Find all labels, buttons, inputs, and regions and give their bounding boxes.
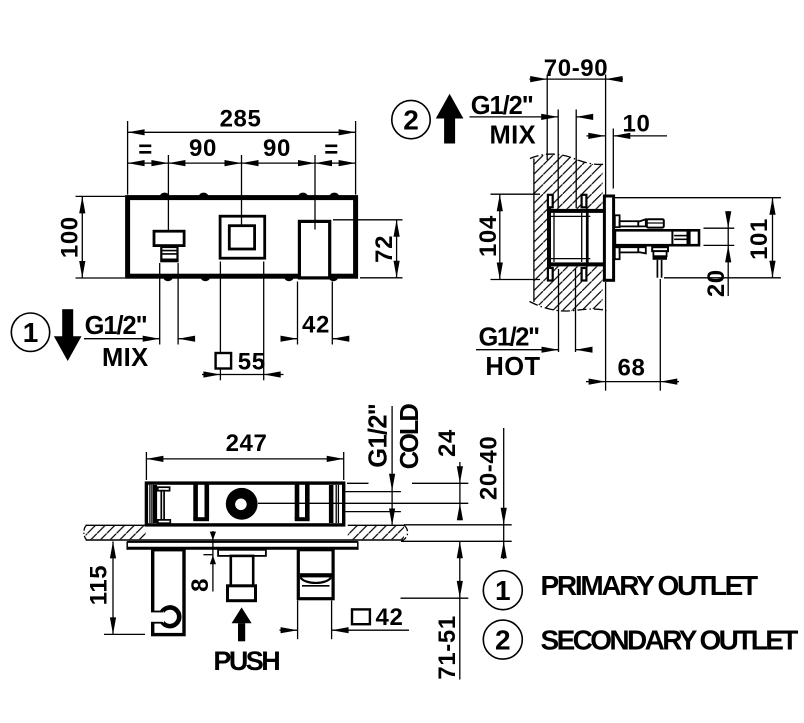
svg-text:70-90: 70-90	[544, 55, 608, 82]
svg-text:G1/2": G1/2"	[479, 323, 541, 351]
svg-text:285: 285	[220, 105, 262, 132]
svg-text:=: =	[138, 136, 153, 163]
svg-text:HOT: HOT	[485, 353, 540, 381]
svg-text:104: 104	[475, 215, 502, 257]
svg-text:MIX: MIX	[102, 344, 149, 372]
svg-text:68: 68	[618, 355, 646, 382]
svg-text:PUSH: PUSH	[213, 646, 281, 676]
svg-text:G1/2": G1/2"	[365, 403, 393, 468]
svg-text:1: 1	[495, 575, 511, 606]
svg-text:SECONDARY OUTLET: SECONDARY OUTLET	[541, 625, 799, 656]
svg-text:G1/2": G1/2"	[85, 312, 149, 340]
svg-text:1: 1	[23, 317, 39, 348]
svg-text:42: 42	[376, 604, 404, 631]
svg-text:G1/2": G1/2"	[471, 92, 535, 120]
svg-text:100: 100	[57, 216, 84, 258]
svg-text:=: =	[324, 136, 339, 163]
svg-text:20-40: 20-40	[476, 436, 503, 500]
svg-text:MIX: MIX	[490, 121, 537, 149]
svg-text:20: 20	[703, 269, 730, 297]
svg-text:115: 115	[86, 565, 113, 606]
svg-text:PRIMARY OUTLET: PRIMARY OUTLET	[541, 570, 759, 601]
svg-text:72: 72	[371, 235, 398, 263]
svg-text:90: 90	[189, 135, 217, 162]
svg-text:71-51: 71-51	[434, 615, 461, 679]
svg-text:101: 101	[746, 218, 773, 260]
svg-text:COLD: COLD	[396, 403, 424, 470]
svg-text:8: 8	[187, 578, 214, 592]
svg-text:90: 90	[263, 135, 291, 162]
svg-text:24: 24	[434, 429, 461, 457]
svg-text:42: 42	[302, 312, 330, 339]
svg-text:55: 55	[238, 349, 266, 376]
svg-text:10: 10	[623, 111, 651, 138]
svg-text:247: 247	[226, 430, 268, 457]
svg-text:2: 2	[495, 625, 511, 656]
svg-text:2: 2	[403, 105, 419, 136]
